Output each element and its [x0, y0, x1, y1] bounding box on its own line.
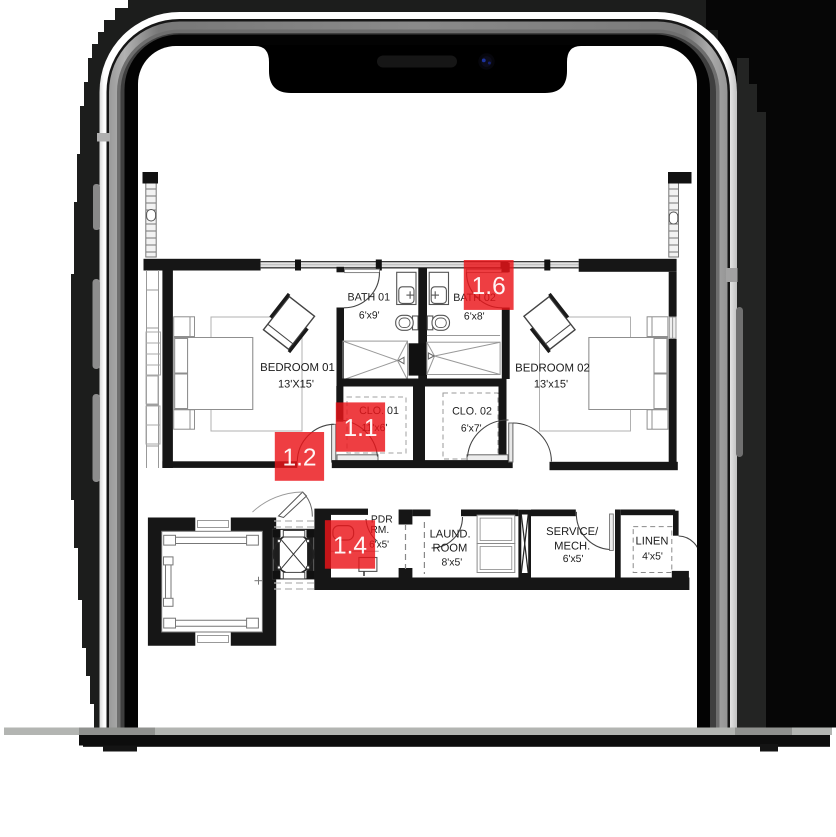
- svg-text:SERVICE/: SERVICE/: [546, 526, 599, 538]
- svg-text:6'x8': 6'x8': [464, 311, 485, 322]
- svg-text:LAUND.: LAUND.: [430, 528, 471, 540]
- svg-text:ROOM: ROOM: [432, 542, 467, 554]
- svg-text:8'x5': 8'x5': [442, 557, 463, 568]
- svg-text:1.1: 1.1: [343, 415, 377, 442]
- svg-text:BEDROOM 01: BEDROOM 01: [260, 362, 335, 374]
- svg-text:6'x9': 6'x9': [359, 310, 380, 321]
- svg-text:BEDROOM 02: BEDROOM 02: [515, 362, 590, 374]
- svg-text:MECH.: MECH.: [554, 541, 590, 553]
- svg-text:6'x5': 6'x5': [563, 554, 584, 565]
- svg-text:13'X15': 13'X15': [278, 379, 314, 391]
- svg-text:LINEN: LINEN: [636, 536, 669, 548]
- svg-text:BATH 01: BATH 01: [348, 291, 391, 303]
- svg-text:4'x5': 4'x5': [642, 552, 663, 563]
- svg-text:1.2: 1.2: [282, 445, 316, 472]
- svg-text:13'x15': 13'x15': [534, 379, 568, 391]
- svg-text:1.4: 1.4: [333, 533, 367, 560]
- svg-text:CLO. 02: CLO. 02: [452, 405, 492, 417]
- svg-text:6'x7': 6'x7': [461, 424, 482, 435]
- svg-text:1.6: 1.6: [472, 273, 506, 300]
